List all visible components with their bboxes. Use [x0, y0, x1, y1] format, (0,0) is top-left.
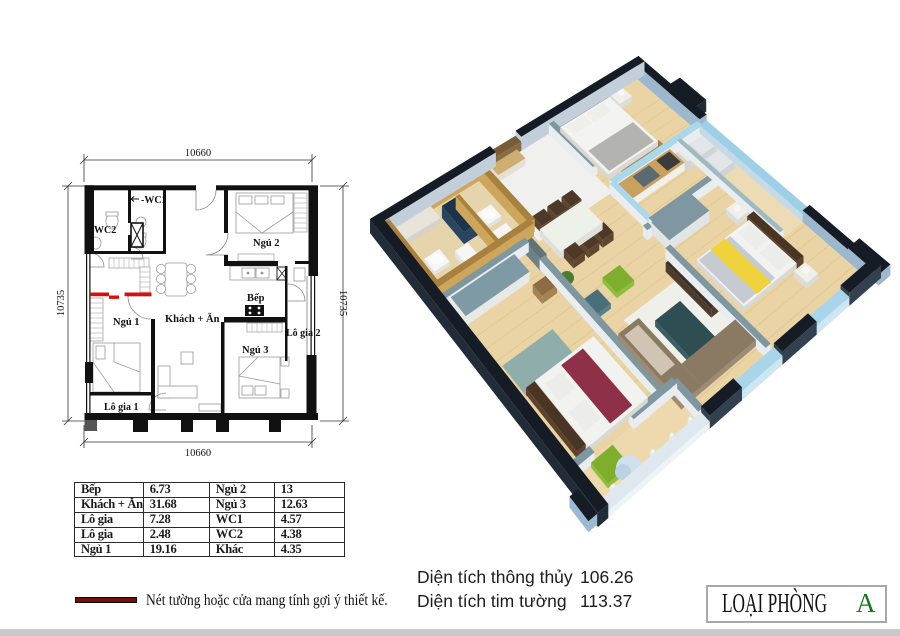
svg-text:10735: 10735	[56, 290, 67, 316]
svg-text:Khách + Ăn: Khách + Ăn	[165, 313, 220, 325]
svg-text:10660: 10660	[185, 148, 211, 159]
svg-text:Ngủ 1: Ngủ 1	[113, 317, 140, 328]
svg-text:10735: 10735	[337, 290, 348, 316]
svg-text:Bếp: Bếp	[247, 293, 265, 304]
svg-text:Ngủ 2: Ngủ 2	[253, 238, 280, 249]
svg-text:-WC1: -WC1	[141, 195, 167, 206]
svg-text:WC2: WC2	[94, 225, 116, 236]
svg-text:10660: 10660	[185, 448, 211, 459]
svg-text:Lô gia 1: Lô gia 1	[104, 402, 138, 413]
svg-text:Lô gia 2: Lô gia 2	[286, 328, 320, 339]
svg-text:Ngủ 3: Ngủ 3	[242, 345, 269, 356]
